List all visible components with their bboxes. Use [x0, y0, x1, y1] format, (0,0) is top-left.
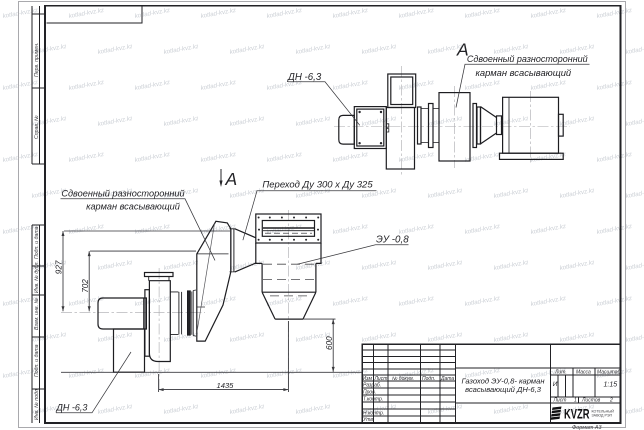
svg-text:2: 2 — [609, 398, 613, 404]
svg-text:600: 600 — [325, 336, 334, 350]
svg-text:Формат А3: Формат А3 — [572, 425, 602, 430]
svg-text:Разраб.: Разраб. — [363, 383, 381, 389]
svg-text:KVZR: KVZR — [564, 406, 590, 422]
svg-text:1435: 1435 — [217, 381, 235, 390]
svg-text:карман всасывающий: карман всасывающий — [86, 202, 180, 212]
svg-text:всасывающий ДН-6,3: всасывающий ДН-6,3 — [465, 385, 542, 394]
svg-text:Перв. примен.: Перв. примен. — [34, 43, 40, 77]
svg-text:ДН -6,3: ДН -6,3 — [56, 403, 88, 413]
svg-text:И: И — [553, 381, 558, 388]
svg-text:Подп. и дата: Подп. и дата — [34, 226, 40, 259]
svg-text:Инв. № дубл.: Инв. № дубл. — [34, 261, 40, 293]
svg-text:Масштаб: Масштаб — [597, 369, 621, 375]
svg-text:Справ. №: Справ. № — [34, 115, 40, 139]
svg-text:Лист: Лист — [553, 398, 567, 404]
svg-text:Масса: Масса — [576, 369, 591, 375]
svg-text:Н.контр.: Н.контр. — [363, 410, 384, 416]
svg-text:№ докум.: № докум. — [392, 376, 414, 382]
svg-text:Лит.: Лит. — [554, 369, 567, 375]
svg-text:Пров.: Пров. — [363, 390, 376, 396]
svg-text:702: 702 — [81, 279, 90, 293]
svg-text:карман всасывающий: карман всасывающий — [475, 67, 571, 78]
svg-text:Дата: Дата — [440, 376, 454, 382]
svg-text:Подп.: Подп. — [422, 376, 435, 382]
svg-text:Инв. № подл.: Инв. № подл. — [34, 388, 40, 420]
svg-text:1: 1 — [574, 398, 577, 404]
svg-text:Переход Ду 300 х Ду 325: Переход Ду 300 х Ду 325 — [262, 179, 373, 190]
svg-text:А: А — [225, 169, 238, 189]
svg-text:ЭУ -0,8: ЭУ -0,8 — [376, 235, 409, 246]
svg-text:927: 927 — [55, 260, 64, 274]
svg-text:ЗАВОД РЭП: ЗАВОД РЭП — [592, 414, 613, 418]
svg-text:Подп. и дата: Подп. и дата — [34, 344, 40, 377]
svg-text:1:15: 1:15 — [604, 382, 618, 389]
svg-text:ДН -6,3: ДН -6,3 — [287, 72, 322, 83]
svg-text:Листов: Листов — [581, 398, 601, 404]
svg-text:Сдвоенный разносторонний: Сдвоенный разносторонний — [467, 54, 588, 64]
svg-text:Лист: Лист — [374, 376, 388, 382]
svg-text:Т.контр.: Т.контр. — [363, 396, 383, 402]
svg-text:Утв.: Утв. — [363, 417, 374, 423]
svg-text:Взам. инв. №: Взам. инв. № — [34, 298, 40, 330]
svg-text:Изм: Изм — [363, 376, 373, 382]
svg-text:Сдвоенный разносторонний: Сдвоенный разносторонний — [61, 189, 184, 199]
